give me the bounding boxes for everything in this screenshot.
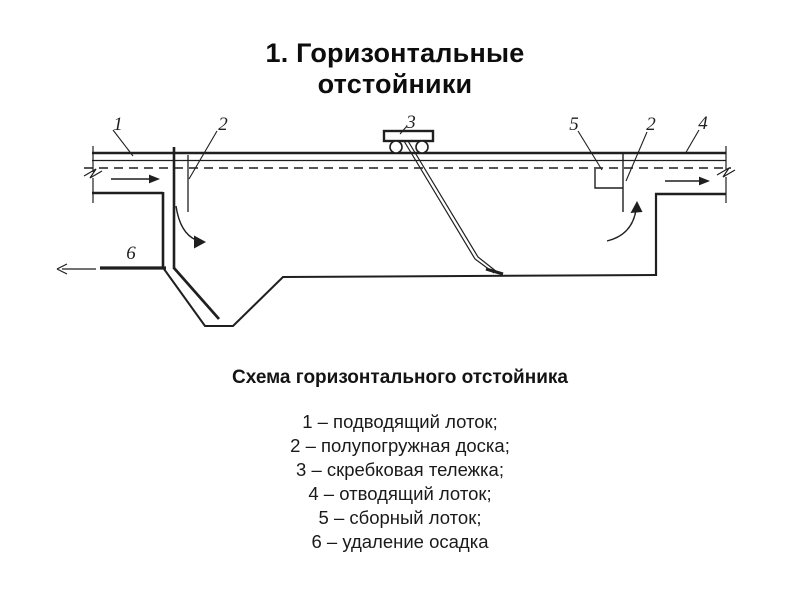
sludge-removal-pipe xyxy=(57,264,166,274)
sludge-hopper xyxy=(164,268,656,326)
outlet-flow-arrow-icon xyxy=(665,177,710,186)
legend-item-3: 3 – скребковая тележка; xyxy=(0,458,800,482)
label-baffle-left: 2 xyxy=(218,114,228,135)
collection-trough xyxy=(595,169,623,188)
down-flow-curved-arrow-icon xyxy=(176,206,206,249)
slide: 1. Горизонтальные отстойники xyxy=(0,0,800,600)
water-surface-lines xyxy=(84,153,731,168)
up-flow-curved-arrow-icon xyxy=(607,201,643,241)
label-collector: 5 xyxy=(569,114,579,135)
label-sludge: 6 xyxy=(126,243,136,264)
label-trolley: 3 xyxy=(405,112,416,133)
legend-item-6: 6 – удаление осадка xyxy=(0,530,800,554)
diagram-caption: Схема горизонтального отстойника xyxy=(0,367,800,389)
label-outlet: 4 xyxy=(698,113,708,134)
inlet-flow-arrow-icon xyxy=(111,175,160,184)
legend-item-5: 5 – сборный лоток; xyxy=(0,506,800,530)
legend-list: 1 – подводящий лоток; 2 – полупогружная … xyxy=(0,410,800,554)
left-break-border xyxy=(84,146,102,203)
legend-item-2: 2 – полупогружная доска; xyxy=(0,434,800,458)
label-baffle-right: 2 xyxy=(646,114,656,135)
legend-item-1: 1 – подводящий лоток; xyxy=(0,410,800,434)
label-inlet: 1 xyxy=(113,114,123,135)
legend-item-4: 4 – отводящий лоток; xyxy=(0,482,800,506)
tank-outlet-wall xyxy=(655,193,726,276)
